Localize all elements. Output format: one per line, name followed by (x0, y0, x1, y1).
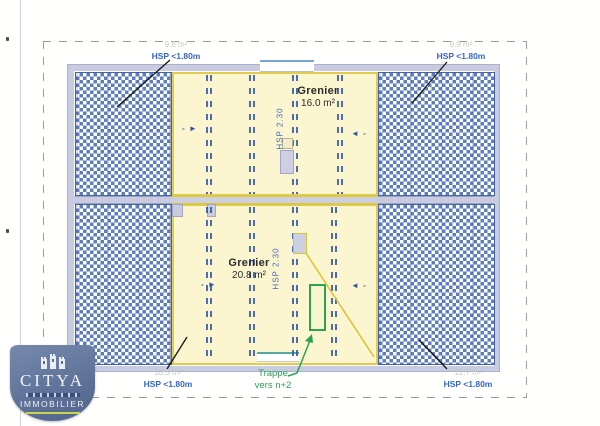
logo-brand-text: CITYA (20, 371, 85, 391)
slope-arrow-icon: ◄ - (351, 281, 367, 290)
building-outline: Grenier 16.0 m² Grenier 20.8 m² HSP 2.30… (67, 64, 500, 372)
trappe-label-line2: vers n+2 (237, 380, 309, 392)
scan-speck (6, 37, 9, 41)
joist-guideline (331, 207, 337, 363)
slope-arrow-icon: - ► (201, 280, 217, 289)
logo-accent-line (26, 412, 80, 414)
low-ceiling-zone-bottom-left (75, 204, 172, 365)
trappe-hatch (309, 284, 326, 331)
low-ceiling-zone-bottom-right (378, 204, 495, 365)
corner-area-label: 9.8 m² (128, 40, 224, 50)
annotation-bottom-left: 10.5 m² HSP <1.80m (120, 368, 216, 389)
castle-icon (40, 353, 66, 369)
ceiling-height-note-top: HSP 2.30 (276, 99, 287, 159)
wall-stub (172, 204, 183, 217)
annotation-top-left: 9.8 m² HSP <1.80m (128, 40, 224, 61)
annotation-top-right: 9.9 m² HSP <1.80m (413, 40, 509, 61)
corner-area-label: 12.7 m² (420, 368, 516, 378)
low-ceiling-zone-top-left (75, 72, 172, 196)
slope-arrow-icon: - ► (182, 124, 198, 133)
corner-area-label: 10.5 m² (120, 368, 216, 378)
room-name: Grenier (282, 85, 354, 97)
scanned-floor-plan-page: Grenier 16.0 m² Grenier 20.8 m² HSP 2.30… (0, 0, 600, 426)
duct-block (293, 233, 307, 254)
ceiling-height-note-bottom: HSP 2.30 (272, 239, 283, 299)
scan-speck (6, 229, 9, 233)
room-area: 16.0 m² (282, 98, 354, 109)
low-ceiling-zone-top-right (378, 72, 495, 196)
corner-hsp-label: HSP <1.80m (128, 51, 224, 61)
joist-guideline (206, 75, 212, 194)
joist-guideline (249, 207, 255, 363)
joist-guideline (249, 75, 255, 194)
top-wall-opening (260, 60, 314, 72)
corner-hsp-label: HSP <1.80m (120, 379, 216, 389)
logo-separator (26, 393, 80, 397)
logo-division-text: IMMOBILIER (20, 399, 85, 409)
corner-hsp-label: HSP <1.80m (420, 379, 516, 389)
trappe-label-line1: Trappe (237, 368, 309, 380)
corner-area-label: 9.9 m² (413, 40, 509, 50)
corner-hsp-label: HSP <1.80m (413, 51, 509, 61)
trappe-label: Trappe vers n+2 (237, 368, 309, 393)
middle-wall-center (172, 195, 378, 205)
annotation-bottom-right: 12.7 m² HSP <1.80m (420, 368, 516, 389)
slope-arrow-icon: ◄ - (351, 129, 367, 138)
grenier-top-label: Grenier 16.0 m² (282, 85, 354, 109)
joist-guideline (292, 207, 298, 363)
citya-logo: CITYA IMMOBILIER (10, 345, 95, 421)
